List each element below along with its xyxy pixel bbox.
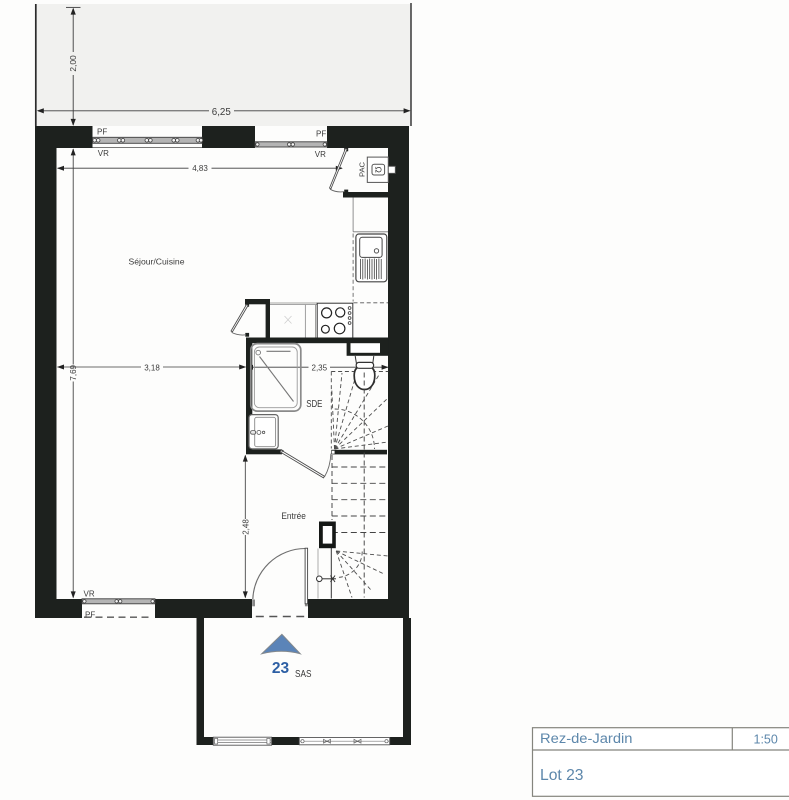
svg-text:VR: VR	[84, 590, 95, 599]
svg-text:Ω: Ω	[373, 167, 383, 173]
svg-text:VR: VR	[315, 150, 326, 159]
svg-text:Entrée: Entrée	[281, 511, 306, 521]
svg-text:2,48: 2,48	[241, 519, 250, 535]
svg-text:4,83: 4,83	[192, 164, 208, 173]
svg-text:3,18: 3,18	[144, 363, 160, 372]
svg-text:23: 23	[272, 660, 290, 677]
svg-text:2,35: 2,35	[312, 363, 328, 372]
svg-text:SAS: SAS	[295, 669, 312, 680]
svg-text:Rez-de-Jardin: Rez-de-Jardin	[540, 731, 633, 747]
svg-text:6,25: 6,25	[212, 107, 232, 118]
svg-text:PF: PF	[97, 127, 107, 136]
svg-text:Séjour/Cuisine: Séjour/Cuisine	[129, 257, 186, 266]
svg-text:PF: PF	[316, 129, 326, 138]
svg-text:VR: VR	[98, 149, 109, 158]
svg-text:PAC: PAC	[358, 161, 367, 177]
svg-text:2,00: 2,00	[68, 55, 78, 72]
svg-text:Lot 23: Lot 23	[540, 767, 584, 784]
svg-text:1:50: 1:50	[754, 733, 778, 747]
svg-text:SDE: SDE	[306, 399, 322, 410]
svg-text:PF: PF	[85, 611, 95, 620]
